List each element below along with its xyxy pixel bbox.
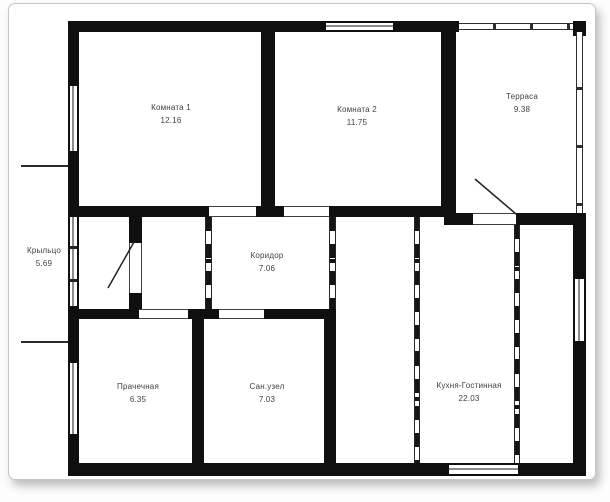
room-name: Кухня-Гостинная [436,379,501,392]
room-label-room1: Комната 1 12.16 [151,101,191,127]
partition-kitchen-right [514,225,520,463]
door-swing-overlay [9,4,597,481]
window-kitchen-bottom [449,463,518,476]
room-label-corridor: Коридор 7.06 [251,249,284,275]
window-kitchen-right [573,279,586,341]
room-label-laundry: Прачечная 6.35 [117,380,159,406]
room-area: 11.75 [337,116,377,129]
window-room1-left [68,86,79,151]
partition-corridor-left [205,217,212,309]
wall-room2-terrace [441,32,456,217]
room-label-kitchen: Кухня-Гостинная 22.03 [436,379,501,405]
terrace-door-swing [475,179,516,214]
room-label-room2: Комната 2 11.75 [337,103,377,129]
terrace-railing-right [576,32,583,216]
door-opening-terrace [473,213,516,225]
floor-plan-sheet: Комната 1 12.16 Комната 2 11.75 Терраса … [8,3,596,480]
room-area: 6.35 [117,393,159,406]
terrace-railing-top [459,23,573,30]
wall-terrace-bottom-seg1 [444,213,473,225]
room-name: Комната 2 [337,103,377,116]
partition-corridor-right [329,217,336,309]
room-name: Сан.узел [250,380,285,393]
porch-edge-top [21,165,68,167]
wall-bathroom-kitchen [324,309,336,466]
floor-plan-drawing: Комната 1 12.16 Комната 2 11.75 Терраса … [9,4,597,481]
wall-entry-seg1 [129,216,142,243]
wall-top-left [68,21,326,32]
wall-corridor-top-seg2 [329,206,444,217]
screenshot-canvas: Комната 1 12.16 Комната 2 11.75 Терраса … [0,0,610,502]
wall-room1-room2 [261,32,275,206]
room-label-porch: Крыльцо 5.69 [27,244,61,270]
room-area: 7.03 [250,393,285,406]
room-name: Терраса [506,90,538,103]
wall-corridor-top-block [256,206,284,217]
room-area: 5.69 [27,257,61,270]
wall-terrace-bottom-seg2 [516,213,573,225]
partition-kitchen-left [414,217,420,463]
door-opening-entry [129,243,142,293]
room-area: 7.06 [251,262,284,275]
room-area: 22.03 [436,392,501,405]
room-area: 9.38 [506,103,538,116]
wall-laundry-bathroom [192,319,204,466]
door-opening-laundry [139,309,188,319]
door-opening-room2 [284,206,329,217]
room-label-bathroom: Сан.узел 7.03 [250,380,285,406]
wall-bottom-left [68,463,457,476]
wall-middle-seg1 [68,309,147,319]
wall-left-seg1 [68,21,79,86]
wall-right-seg1 [573,213,586,279]
room-name: Прачечная [117,380,159,393]
door-opening-bathroom [219,309,264,319]
wall-middle-seg2 [188,309,219,319]
entrance-door-left [68,216,79,306]
room-name: Коридор [251,249,284,262]
room-area: 12.16 [151,114,191,127]
room-label-terrace: Терраса 9.38 [506,90,538,116]
wall-top-right [393,21,459,32]
window-laundry-left [68,363,79,434]
window-room2-top [326,21,393,32]
wall-right-seg2 [573,341,586,476]
porch-edge-bottom [21,341,68,343]
room-name: Крыльцо [27,244,61,257]
door-opening-room1 [209,206,256,217]
room-name: Комната 1 [151,101,191,114]
